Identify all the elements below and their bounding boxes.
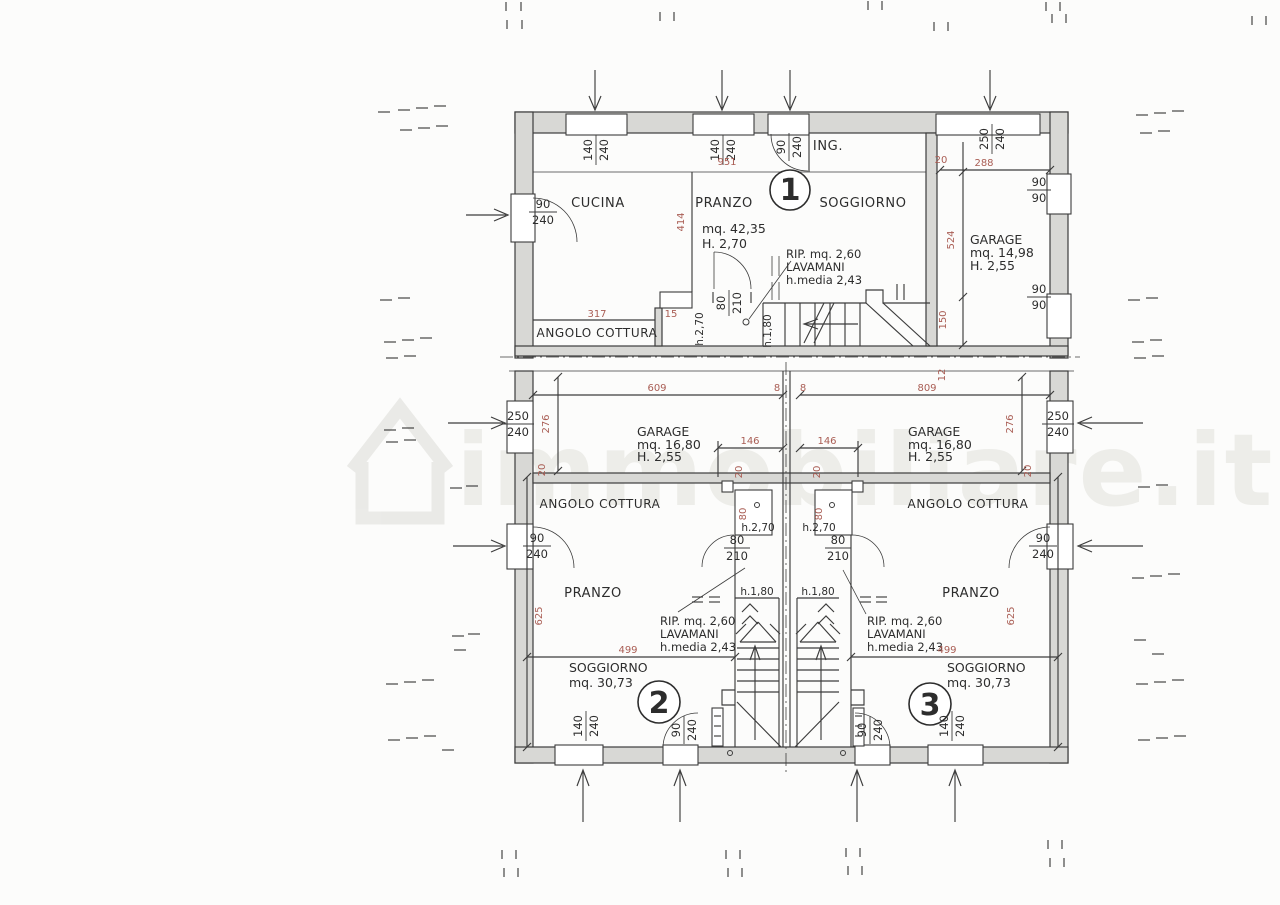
- unit1-lavamani: LAVAMANI: [786, 260, 845, 274]
- svg-text:250: 250: [507, 409, 529, 423]
- dim-499-right: 499: [937, 645, 956, 656]
- dim-20-garage1: 20: [935, 155, 948, 166]
- dim-276-right: 276: [1005, 414, 1016, 433]
- dim-closet-door-u2: 80 210: [724, 533, 750, 563]
- svg-text:90: 90: [1032, 191, 1047, 205]
- garage3-height: H. 2,55: [908, 449, 953, 464]
- svg-text:210: 210: [827, 549, 849, 563]
- label-angolo-3: ANGOLO COTTURA: [908, 497, 1029, 511]
- dim-20-d: 20: [1023, 465, 1034, 478]
- dim-809: 809: [917, 383, 936, 394]
- floor-plan-scan: immobiliare.it: [0, 0, 1280, 905]
- unit1-h180: h.1,80: [762, 314, 774, 347]
- label-angolo-1: ANGOLO COTTURA: [537, 326, 658, 340]
- svg-text:240: 240: [790, 136, 804, 158]
- dim-20-c: 20: [812, 466, 823, 479]
- svg-text:90: 90: [1036, 531, 1051, 545]
- svg-text:140: 140: [581, 139, 595, 161]
- label-cucina: CUCINA: [571, 196, 625, 211]
- svg-text:80: 80: [831, 533, 846, 547]
- svg-text:140: 140: [937, 715, 951, 737]
- garage1-height: H. 2,55: [970, 258, 1015, 273]
- dim-625-left: 625: [534, 606, 545, 625]
- svg-text:240: 240: [507, 425, 529, 439]
- dim-80-left: 80: [738, 508, 749, 521]
- label-pranzo-1: PRANZO: [695, 196, 753, 211]
- svg-text:240: 240: [587, 715, 601, 737]
- svg-text:90: 90: [669, 723, 683, 738]
- dim-8b: 8: [800, 383, 806, 394]
- floor-plan-svg: immobiliare.it: [0, 0, 1280, 905]
- dim-window-140-u3: 140240: [937, 711, 967, 741]
- door-90-unit3-bottom: [855, 745, 890, 765]
- unit2-lavamani: LAVAMANI: [660, 627, 719, 641]
- svg-text:90: 90: [1032, 175, 1047, 189]
- label-angolo-2: ANGOLO COTTURA: [540, 497, 661, 511]
- label-pranzo-3: PRANZO: [942, 586, 1000, 601]
- window-90-garage1-b: [1047, 294, 1071, 338]
- svg-text:90: 90: [774, 140, 788, 155]
- window-140-unit3: [928, 745, 983, 765]
- label-soggiorno-2: SOGGIORNO: [569, 660, 648, 675]
- svg-text:240: 240: [685, 719, 699, 741]
- unit3-rip: RIP. mq. 2,60: [867, 614, 942, 628]
- unit1-area: mq. 42,35: [702, 221, 766, 236]
- stairs-h180-left: h.1,80: [740, 586, 773, 598]
- dim-window-140-u2: 140240: [571, 711, 601, 741]
- svg-text:240: 240: [526, 547, 548, 561]
- dim-20-a: 20: [537, 464, 548, 477]
- window-140-unit1-b: [693, 114, 754, 135]
- stairs-h180-right: h.1,80: [801, 586, 834, 598]
- door-arc-unit1-interior: [714, 252, 751, 289]
- dim-door-80-u1: 80210: [714, 290, 744, 316]
- svg-text:250: 250: [1047, 409, 1069, 423]
- dim-150: 150: [938, 310, 949, 329]
- unit2-area: mq. 30,73: [569, 675, 633, 690]
- label-ing: ING.: [813, 139, 843, 154]
- svg-text:80: 80: [714, 296, 728, 311]
- dim-8a: 8: [774, 383, 780, 394]
- window-90-garage1-a: [1047, 174, 1071, 214]
- dim-288: 288: [974, 158, 993, 169]
- svg-text:240: 240: [953, 715, 967, 737]
- dim-12: 12: [937, 369, 948, 382]
- svg-text:240: 240: [597, 139, 611, 161]
- label-soggiorno-1: SOGGIORNO: [819, 196, 906, 211]
- watermark-text: immobiliare.it: [456, 412, 1274, 529]
- door-90-unit2-bottom: [663, 745, 698, 765]
- svg-text:90: 90: [530, 531, 545, 545]
- dim-garage1-door: 250240: [977, 124, 1007, 154]
- unit1-staircase: [763, 284, 930, 346]
- dim-20-b: 20: [734, 466, 745, 479]
- dim-951: 951: [717, 157, 736, 168]
- door-ing-unit1: [768, 114, 809, 135]
- unit1-hmedia: h.media 2,43: [786, 273, 862, 287]
- unit2-number: 2: [649, 686, 670, 721]
- dim-317: 317: [587, 309, 606, 320]
- dim-15: 15: [665, 309, 678, 320]
- svg-text:240: 240: [532, 213, 554, 227]
- unit2-hmedia: h.media 2,43: [660, 640, 736, 654]
- unit2-rip: RIP. mq. 2,60: [660, 614, 735, 628]
- dim-414: 414: [676, 212, 687, 231]
- unit1-h270: h.2,70: [694, 312, 706, 345]
- svg-text:140: 140: [571, 715, 585, 737]
- svg-text:240: 240: [1047, 425, 1069, 439]
- dim-80-right: 80: [814, 508, 825, 521]
- door-arc-closet-unit3: [852, 535, 884, 567]
- dim-524: 524: [946, 230, 957, 249]
- dim-closet-door-u3: 80 210: [825, 533, 851, 563]
- svg-text:90: 90: [1032, 298, 1047, 312]
- dim-door-90-u2: 90240: [669, 716, 699, 744]
- unit1-height: H. 2,70: [702, 236, 747, 251]
- unit3-lavamani: LAVAMANI: [867, 627, 926, 641]
- label-soggiorno-3: SOGGIORNO: [947, 660, 1026, 675]
- svg-text:90: 90: [855, 723, 869, 738]
- unit3-area: mq. 30,73: [947, 675, 1011, 690]
- svg-text:240: 240: [871, 719, 885, 741]
- svg-text:80: 80: [730, 533, 745, 547]
- dim-609: 609: [647, 383, 666, 394]
- svg-text:240: 240: [1032, 547, 1054, 561]
- garage2-height: H. 2,55: [637, 449, 682, 464]
- dim-146-right: 146: [817, 436, 836, 447]
- unit1-number: 1: [780, 173, 801, 208]
- dim-window-140-u1a: 140240: [581, 135, 611, 165]
- dim-276-left: 276: [541, 414, 552, 433]
- label-pranzo-2: PRANZO: [564, 586, 622, 601]
- dim-625-right: 625: [1006, 606, 1017, 625]
- dim-499-left: 499: [618, 645, 637, 656]
- svg-text:210: 210: [730, 292, 744, 314]
- window-140-unit2: [555, 745, 603, 765]
- stairs-h270-left: h.2,70: [741, 522, 774, 534]
- svg-text:240: 240: [993, 128, 1007, 150]
- dim-146-left: 146: [740, 436, 759, 447]
- unit1-rip: RIP. mq. 2,60: [786, 247, 861, 261]
- svg-text:210: 210: [726, 549, 748, 563]
- svg-text:90: 90: [536, 197, 551, 211]
- svg-text:90: 90: [1032, 282, 1047, 296]
- window-140-unit1-a: [566, 114, 627, 135]
- svg-text:250: 250: [977, 128, 991, 150]
- unit3-hmedia: h.media 2,43: [867, 640, 943, 654]
- central-staircase: [714, 598, 864, 747]
